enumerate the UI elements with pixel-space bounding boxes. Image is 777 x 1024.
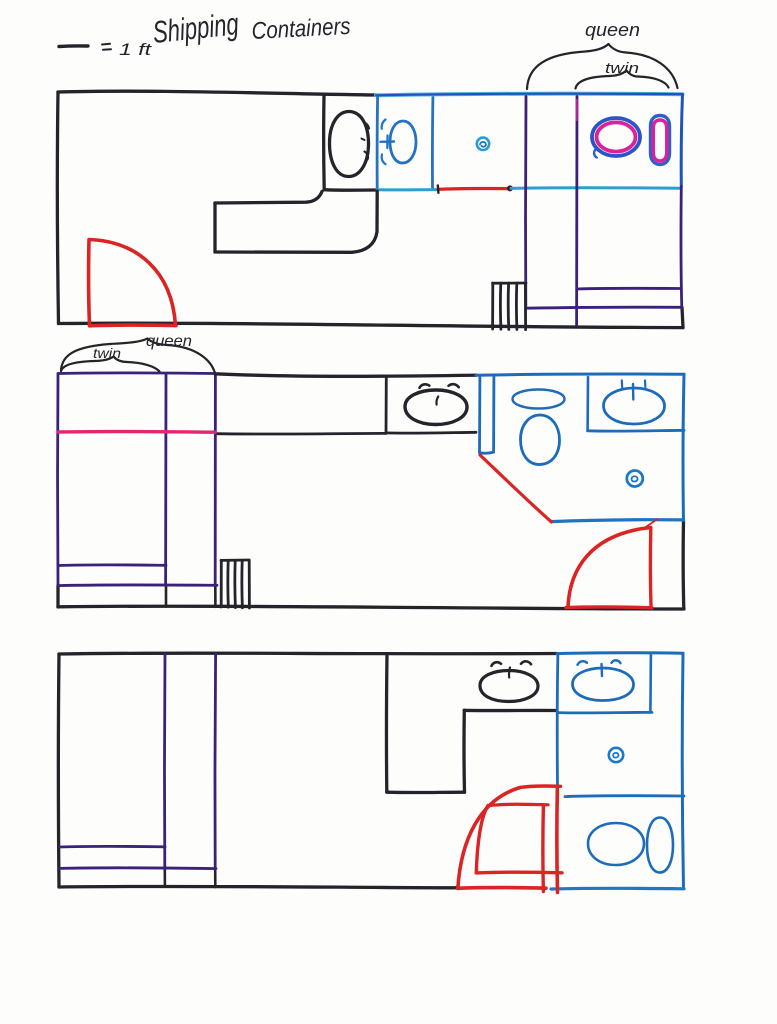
svg-text:twin: twin xyxy=(605,60,639,77)
svg-text:Containers: Containers xyxy=(251,13,351,45)
svg-text:1 ft: 1 ft xyxy=(119,40,153,59)
svg-text:queen: queen xyxy=(146,333,192,350)
svg-text:twin: twin xyxy=(93,346,121,361)
svg-text:queen: queen xyxy=(585,20,640,40)
